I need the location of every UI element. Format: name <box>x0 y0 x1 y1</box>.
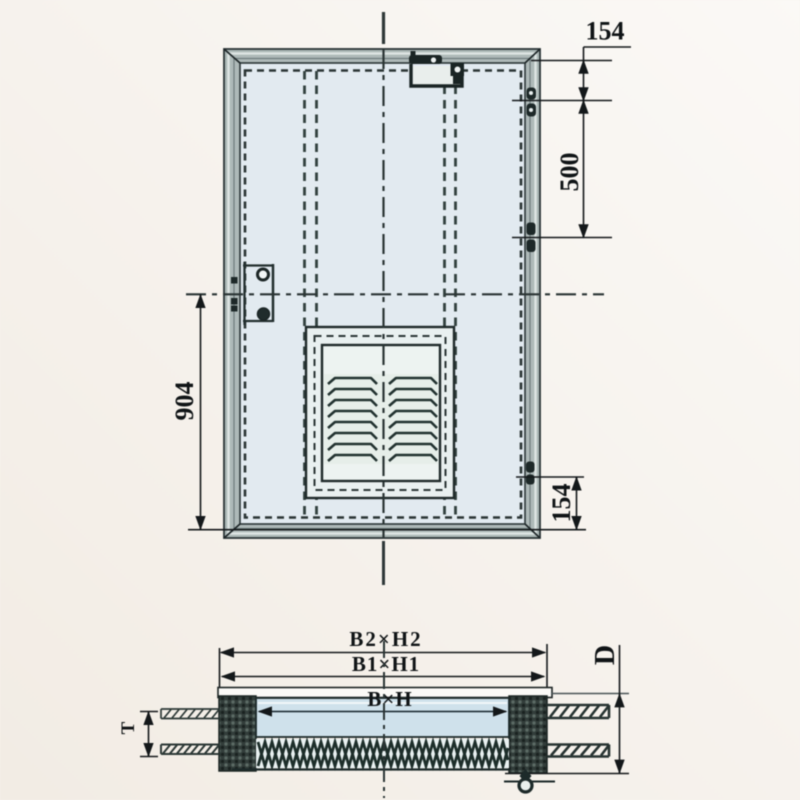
svg-text:B2×H2: B2×H2 <box>349 627 422 651</box>
svg-text:B1×H1: B1×H1 <box>352 652 420 676</box>
svg-text:904: 904 <box>170 382 199 421</box>
svg-text:154: 154 <box>547 484 576 523</box>
svg-text:500: 500 <box>555 153 584 192</box>
svg-text:B×H: B×H <box>367 687 412 711</box>
svg-text:T: T <box>118 721 139 734</box>
svg-text:D: D <box>590 645 621 665</box>
svg-text:154: 154 <box>586 17 625 46</box>
